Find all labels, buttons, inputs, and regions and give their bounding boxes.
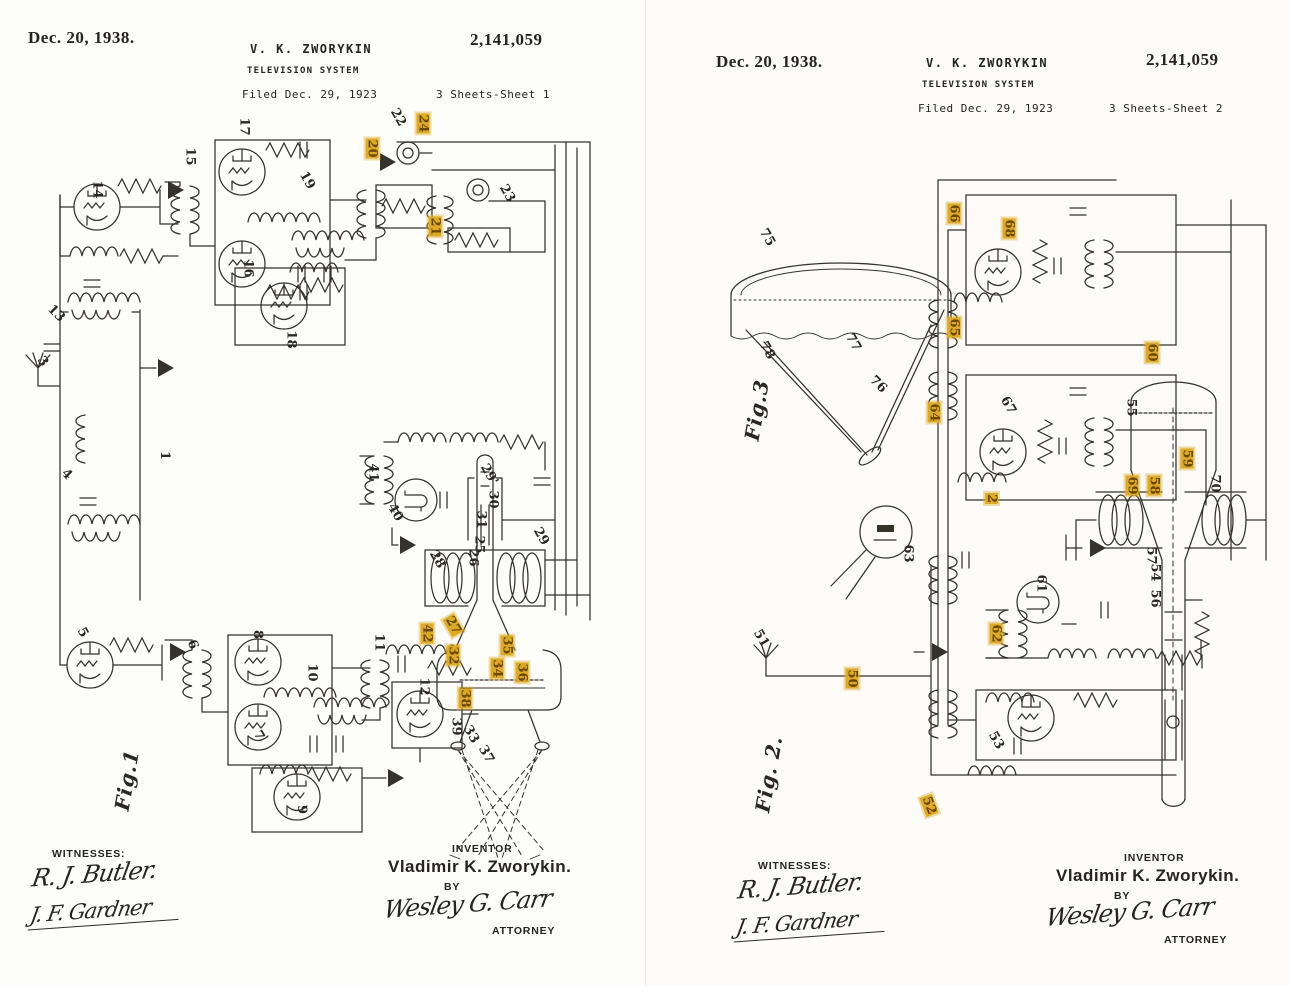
inventor-label: INVENTOR [452,843,512,855]
fig2-kinescope [1066,382,1266,806]
patent-page-sheet-2: Dec. 20, 1938. V. K. ZWORYKIN TELEVISION… [645,0,1290,986]
fig1-oscillator [360,433,550,554]
fig1-antenna-input [26,195,174,600]
patent-scan: Dec. 20, 1938. V. K. ZWORYKIN TELEVISION… [0,0,1290,986]
fig2-amp-stage-b [958,375,1206,505]
fig2-fig3-schematic-drawing [646,0,1290,986]
attorney-label: ATTORNEY [492,925,555,937]
fig1-schematic-drawing [0,0,645,986]
fig2-sync-generator [986,581,1201,665]
fig2-amp-stage-a [954,195,1266,560]
attorney-label: ATTORNEY [1164,934,1227,946]
fig3-projection-drum [731,263,951,599]
inventor-label: INVENTOR [1124,852,1184,864]
inventor-signature: Vladimir K. Zworykin. [388,857,571,877]
patent-page-sheet-1: Dec. 20, 1938. V. K. ZWORYKIN TELEVISION… [0,0,645,986]
fig1-camera-tube [425,455,590,859]
inventor-signature: Vladimir K. Zworykin. [1056,866,1239,886]
fig2-receiver-input [754,565,1176,775]
fig1-amp-stage-2 [215,140,396,345]
fig1-amp-stage-3 [60,600,404,832]
fig1-amp-stage-1 [60,179,215,287]
